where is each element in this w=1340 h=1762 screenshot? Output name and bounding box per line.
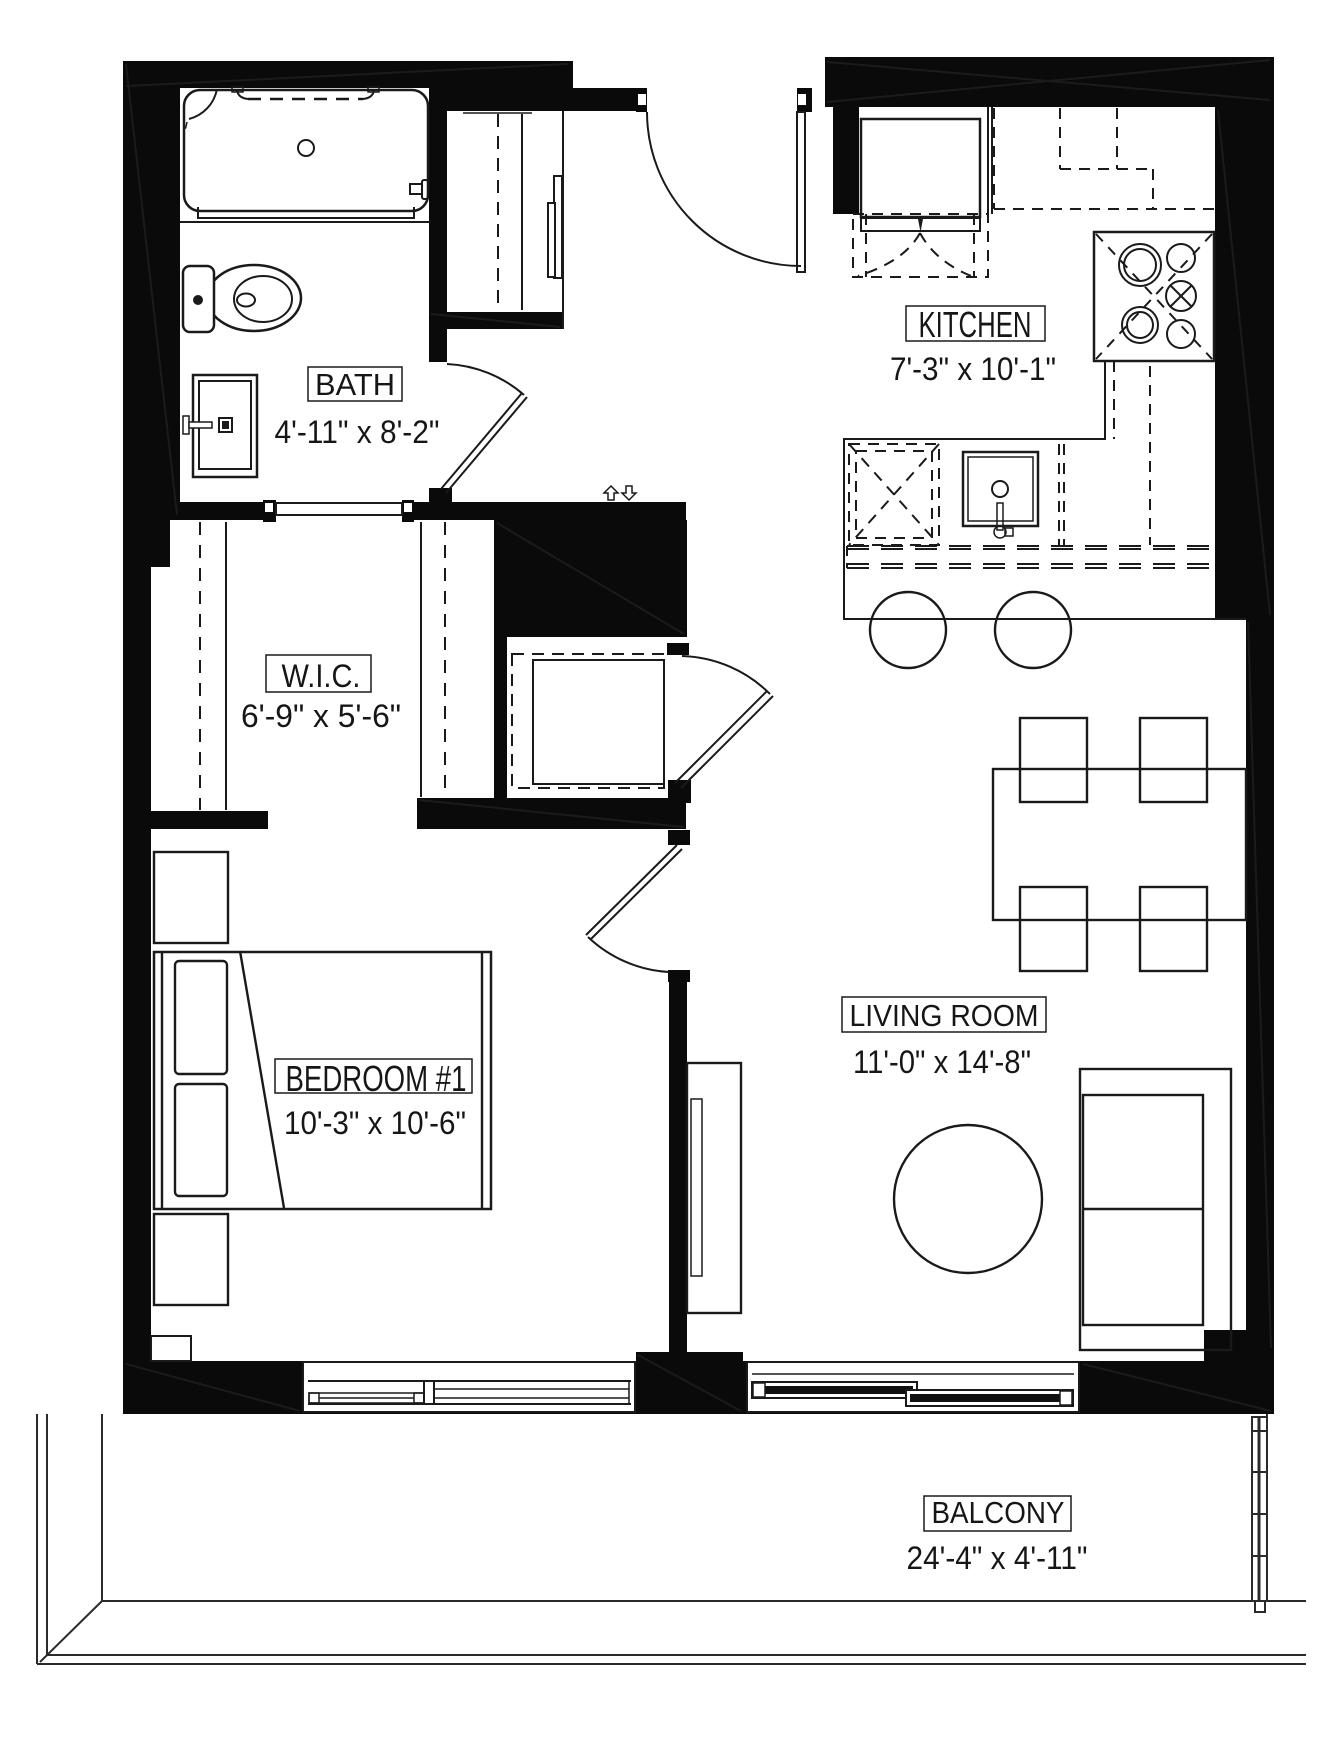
- svg-text:W.I.C.: W.I.C.: [282, 658, 361, 694]
- svg-text:BEDROOM #1: BEDROOM #1: [286, 1058, 467, 1099]
- svg-text:7'-3" x 10'-1": 7'-3" x 10'-1": [890, 351, 1056, 387]
- svg-text:LIVING ROOM: LIVING ROOM: [850, 998, 1039, 1033]
- svg-text:4'-11" x 8'-2": 4'-11" x 8'-2": [275, 414, 440, 450]
- svg-text:11'-0" x 14'-8": 11'-0" x 14'-8": [853, 1044, 1031, 1080]
- svg-text:KITCHEN: KITCHEN: [919, 304, 1032, 345]
- svg-text:BATH: BATH: [315, 367, 395, 402]
- svg-text:24'-4" x 4'-11": 24'-4" x 4'-11": [907, 1540, 1088, 1576]
- svg-text:10'-3" x 10'-6": 10'-3" x 10'-6": [284, 1105, 466, 1141]
- svg-text:6'-9" x 5'-6": 6'-9" x 5'-6": [241, 698, 401, 734]
- svg-text:BALCONY: BALCONY: [932, 1495, 1065, 1530]
